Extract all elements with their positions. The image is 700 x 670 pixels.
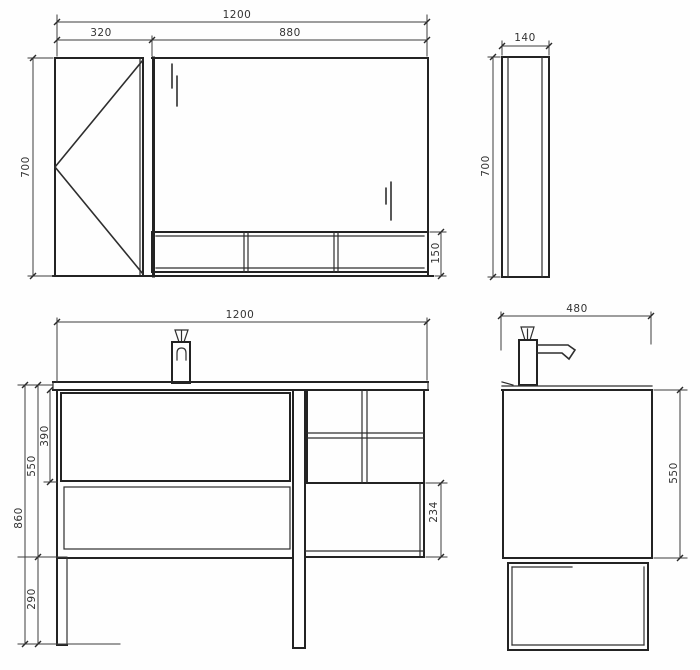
drawing-canvas: 1200 320 880 700 150	[0, 0, 700, 670]
dim-label-body-height: 550	[26, 455, 38, 477]
dim-label-leg-height: 290	[26, 588, 38, 610]
dim-label-mirror-depth: 140	[514, 32, 536, 44]
drawing-background	[0, 0, 700, 670]
dim-label-door-width: 320	[90, 27, 112, 39]
dim-label-shelf-height: 150	[430, 242, 442, 264]
dim-label-drawer-height: 390	[39, 425, 51, 447]
dim-label-mirror-height: 700	[20, 156, 32, 178]
dim-label-mirror-width: 880	[279, 27, 301, 39]
dim-label-vanity-width: 1200	[226, 309, 255, 321]
dim-label-niche-height: 234	[428, 501, 440, 523]
technical-drawing: 1200 320 880 700 150	[0, 0, 700, 670]
dim-label-mirror-total-width: 1200	[223, 9, 252, 21]
dim-label-mirror-side-height: 700	[480, 155, 492, 177]
dim-label-vanity-depth: 480	[566, 303, 588, 315]
dim-label-vanity-side-height: 550	[668, 462, 680, 484]
dim-label-total-height: 860	[13, 507, 25, 529]
